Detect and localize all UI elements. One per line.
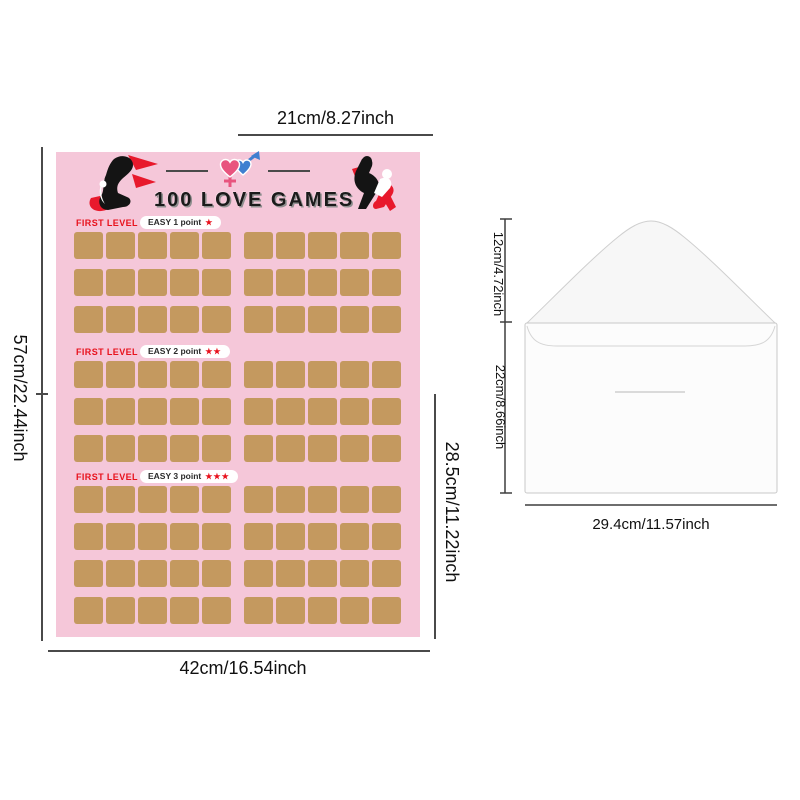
scratch-square xyxy=(308,486,337,513)
scratch-square xyxy=(170,361,199,388)
scratch-square xyxy=(74,269,103,296)
scratch-square xyxy=(138,435,167,462)
scratch-group xyxy=(244,398,401,425)
scratch-group xyxy=(244,560,401,587)
scratch-square xyxy=(74,306,103,333)
scratch-square xyxy=(74,232,103,259)
scratch-square xyxy=(74,560,103,587)
scratch-square xyxy=(244,523,273,550)
poster-right-dimension-label: 28.5cm/11.22inch xyxy=(444,441,462,583)
scratch-square xyxy=(202,306,231,333)
scratch-square xyxy=(138,398,167,425)
poster-title-block: 100 LOVE GAMES xyxy=(154,154,322,212)
scratch-grid xyxy=(74,486,402,624)
scratch-row xyxy=(74,486,402,513)
scratch-square xyxy=(170,435,199,462)
scratch-square xyxy=(244,597,273,624)
scratch-square xyxy=(276,597,305,624)
scratch-square xyxy=(244,486,273,513)
poster-header: 100 LOVE GAMES xyxy=(56,152,420,214)
scratch-square xyxy=(340,398,369,425)
scratch-square xyxy=(276,269,305,296)
scratch-square xyxy=(340,232,369,259)
scratch-group xyxy=(74,361,231,388)
scratch-square xyxy=(372,232,401,259)
poster-section: FIRST LEVEL EASY 2 point ★★ xyxy=(74,345,402,462)
badge-stars: ★★★ xyxy=(205,472,230,481)
scratch-square xyxy=(202,597,231,624)
scratch-group xyxy=(74,435,231,462)
poster-bottom-dimension-label: 42cm/16.54inch xyxy=(143,658,343,679)
scratch-square xyxy=(276,435,305,462)
scratch-square xyxy=(106,523,135,550)
scratch-square xyxy=(106,269,135,296)
scratch-group xyxy=(244,435,401,462)
level-label: FIRST LEVEL xyxy=(76,347,140,357)
poster-section: FIRST LEVEL EASY 3 point ★★★ xyxy=(74,470,402,624)
scratch-square xyxy=(202,269,231,296)
scratch-row xyxy=(74,398,402,425)
scratch-row xyxy=(74,361,402,388)
scratch-square xyxy=(106,232,135,259)
scratch-square xyxy=(244,435,273,462)
scratch-square xyxy=(74,523,103,550)
section-label-row: FIRST LEVEL EASY 2 point ★★ xyxy=(74,345,402,358)
scratch-square xyxy=(170,269,199,296)
scratch-group xyxy=(244,597,401,624)
scratch-square xyxy=(244,560,273,587)
section-label-row: FIRST LEVEL EASY 3 point ★★★ xyxy=(74,470,402,483)
scratch-square xyxy=(308,523,337,550)
scratch-square xyxy=(372,269,401,296)
scratch-group xyxy=(74,523,231,550)
poster-left-dimension-label: 57cm/22.44inch xyxy=(12,331,30,465)
scratch-square xyxy=(372,486,401,513)
scratch-square xyxy=(340,269,369,296)
poster-top-dimension-label: 21cm/8.27inch xyxy=(238,108,433,129)
scratch-square xyxy=(340,597,369,624)
poster-top-dimension-line xyxy=(238,134,433,136)
difficulty-label: EASY 2 point xyxy=(148,346,201,356)
scratch-group xyxy=(74,560,231,587)
scratch-square xyxy=(202,232,231,259)
scratch-square xyxy=(340,486,369,513)
scratch-square xyxy=(340,306,369,333)
scratch-square xyxy=(308,597,337,624)
scratch-square xyxy=(276,306,305,333)
scratch-square xyxy=(170,306,199,333)
scratch-square xyxy=(372,398,401,425)
envelope-body-dimension-label: 22cm/8.66inch xyxy=(493,365,508,450)
envelope-width-dimension-label: 29.4cm/11.57inch xyxy=(592,516,709,533)
envelope-diagram: 12cm/4.72inch 22cm/8.66inch 29.4cm/11.57… xyxy=(480,200,800,545)
scratch-square xyxy=(340,523,369,550)
scratch-group xyxy=(244,306,401,333)
scratch-square xyxy=(170,398,199,425)
scratch-square xyxy=(244,232,273,259)
scratch-square xyxy=(170,523,199,550)
difficulty-label: EASY 3 point xyxy=(148,471,201,481)
scratch-square xyxy=(202,523,231,550)
badge-stars: ★ xyxy=(205,218,213,227)
scratch-square xyxy=(244,361,273,388)
scratch-square xyxy=(276,486,305,513)
scratch-square xyxy=(138,269,167,296)
difficulty-badge: EASY 2 point ★★ xyxy=(140,345,230,358)
scratch-group xyxy=(244,361,401,388)
scratch-square xyxy=(276,232,305,259)
scratch-square xyxy=(276,560,305,587)
scratch-group xyxy=(74,486,231,513)
difficulty-badge: EASY 1 point ★ xyxy=(140,216,221,229)
product-dimension-diagram: 100 LOVE GAMES FIRST LEVEL EASY 1 point xyxy=(0,0,800,800)
couple-silhouette-right-icon xyxy=(332,155,410,213)
scratch-square xyxy=(340,560,369,587)
scratch-square xyxy=(170,486,199,513)
scratch-row xyxy=(74,306,402,333)
scratch-square xyxy=(340,435,369,462)
scratch-group xyxy=(74,306,231,333)
hearts-emblem-row xyxy=(154,154,322,188)
scratch-square xyxy=(308,560,337,587)
scratch-group xyxy=(244,486,401,513)
scratch-square xyxy=(74,361,103,388)
level-label: FIRST LEVEL xyxy=(76,472,140,482)
scratch-square xyxy=(202,398,231,425)
section-label-row: FIRST LEVEL EASY 1 point ★ xyxy=(74,216,402,229)
scratch-square xyxy=(74,486,103,513)
scratch-square xyxy=(244,398,273,425)
scratch-square xyxy=(372,560,401,587)
scratch-square xyxy=(106,361,135,388)
scratch-square xyxy=(170,232,199,259)
scratch-square xyxy=(244,306,273,333)
couple-silhouette-left-icon xyxy=(86,153,160,215)
scratch-row xyxy=(74,560,402,587)
scratch-group xyxy=(244,232,401,259)
scratch-row xyxy=(74,435,402,462)
poster-bottom-dimension-line xyxy=(48,650,430,652)
scratch-square xyxy=(138,232,167,259)
scratch-square xyxy=(106,398,135,425)
scratch-square xyxy=(202,560,231,587)
scratch-square xyxy=(106,435,135,462)
scratch-row xyxy=(74,269,402,296)
difficulty-label: EASY 1 point xyxy=(148,217,201,227)
scratch-group xyxy=(244,269,401,296)
scratch-square xyxy=(106,486,135,513)
poster-title: 100 LOVE GAMES xyxy=(154,189,322,212)
emblem-left-line xyxy=(166,170,208,172)
scratch-square xyxy=(372,361,401,388)
scratch-square xyxy=(308,232,337,259)
scratch-square xyxy=(106,306,135,333)
envelope-flap xyxy=(527,221,775,323)
scratch-square xyxy=(138,523,167,550)
gender-hearts-icon xyxy=(215,151,261,191)
scratch-square xyxy=(372,523,401,550)
scratch-square xyxy=(74,435,103,462)
scratch-square xyxy=(202,361,231,388)
scratch-grid xyxy=(74,361,402,462)
scratch-square xyxy=(308,398,337,425)
scratch-square xyxy=(106,560,135,587)
scratch-row xyxy=(74,597,402,624)
scratch-square xyxy=(138,560,167,587)
scratch-square xyxy=(202,435,231,462)
scratch-square xyxy=(74,597,103,624)
scratch-group xyxy=(74,398,231,425)
scratch-square xyxy=(276,523,305,550)
scratch-group xyxy=(74,232,231,259)
poster-sections: FIRST LEVEL EASY 1 point ★ FIRST LEVEL E… xyxy=(56,216,420,624)
envelope-body xyxy=(525,323,777,493)
scratch-square xyxy=(170,560,199,587)
level-label: FIRST LEVEL xyxy=(76,218,140,228)
scratch-square xyxy=(138,597,167,624)
poster-section: FIRST LEVEL EASY 1 point ★ xyxy=(74,216,402,333)
scratch-square xyxy=(308,361,337,388)
scratch-square xyxy=(276,361,305,388)
scratch-square xyxy=(308,269,337,296)
scratch-square xyxy=(106,597,135,624)
scratch-square xyxy=(372,435,401,462)
scratch-square xyxy=(138,486,167,513)
scratch-group xyxy=(244,523,401,550)
scratch-grid xyxy=(74,232,402,333)
scratch-group xyxy=(74,597,231,624)
scratch-square xyxy=(202,486,231,513)
scratch-square xyxy=(138,361,167,388)
scratch-square xyxy=(276,398,305,425)
scratch-row xyxy=(74,232,402,259)
scratch-poster: 100 LOVE GAMES FIRST LEVEL EASY 1 point xyxy=(56,152,420,637)
scratch-square xyxy=(372,597,401,624)
scratch-square xyxy=(244,269,273,296)
scratch-row xyxy=(74,523,402,550)
envelope-flap-dimension-label: 12cm/4.72inch xyxy=(491,232,506,317)
scratch-square xyxy=(138,306,167,333)
scratch-square xyxy=(170,597,199,624)
emblem-right-line xyxy=(268,170,310,172)
poster-right-dimension-line xyxy=(434,394,436,639)
badge-stars: ★★ xyxy=(205,347,221,356)
scratch-square xyxy=(74,398,103,425)
difficulty-badge: EASY 3 point ★★★ xyxy=(140,470,238,483)
scratch-group xyxy=(74,269,231,296)
scratch-square xyxy=(308,435,337,462)
scratch-square xyxy=(372,306,401,333)
scratch-square xyxy=(340,361,369,388)
scratch-square xyxy=(308,306,337,333)
poster-left-dimension-midtick xyxy=(36,393,48,395)
